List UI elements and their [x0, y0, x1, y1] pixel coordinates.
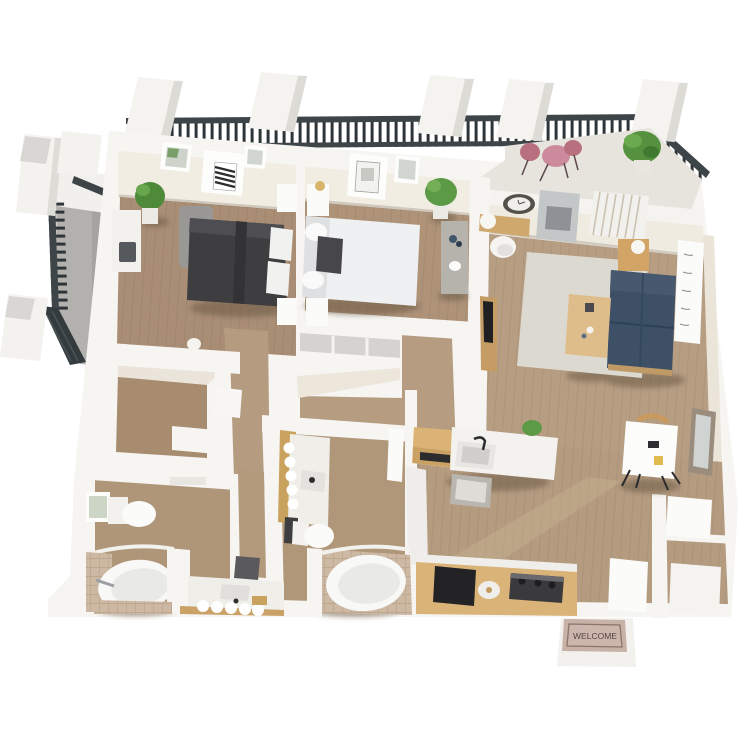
svg-text:WELCOME: WELCOME: [573, 631, 617, 641]
